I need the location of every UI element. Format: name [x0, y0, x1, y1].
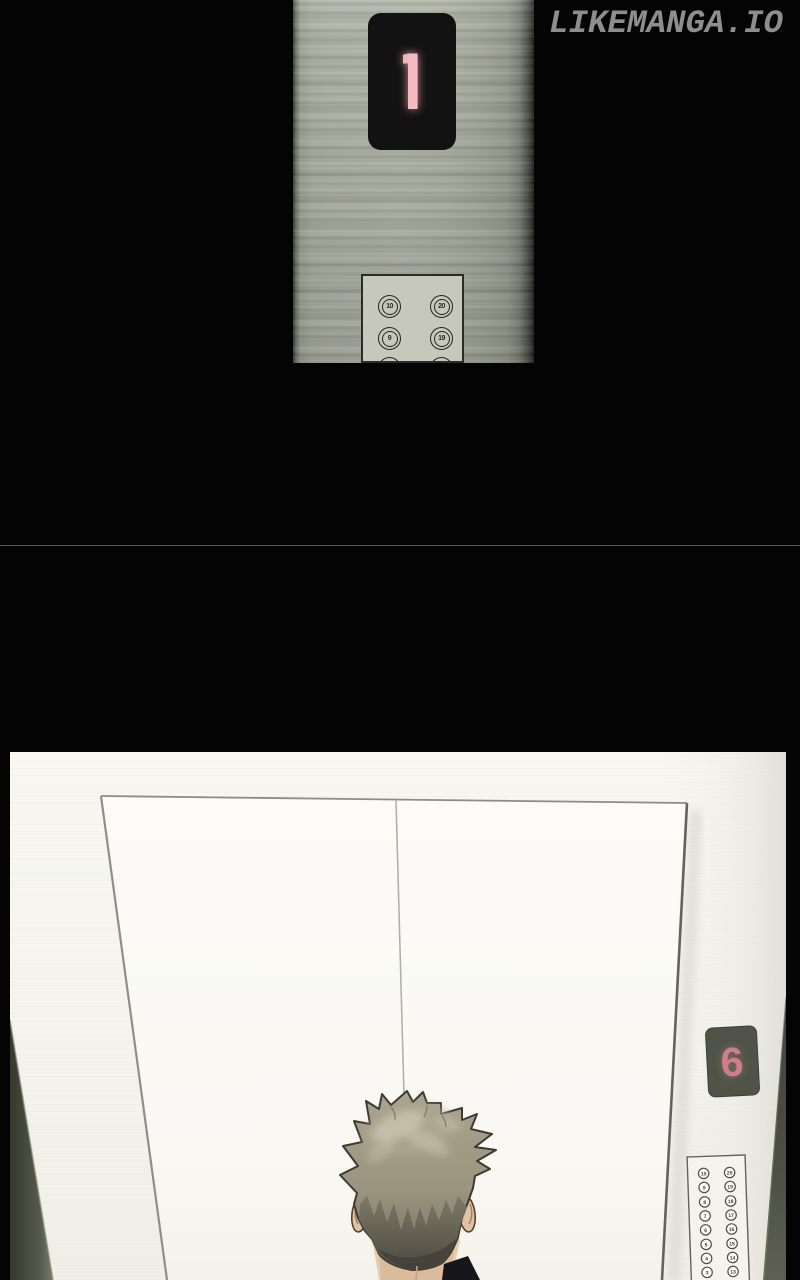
svg-text:20: 20	[727, 1170, 733, 1176]
svg-text:3: 3	[706, 1270, 709, 1276]
svg-text:15: 15	[729, 1241, 735, 1247]
svg-text:4: 4	[705, 1256, 708, 1262]
svg-text:7: 7	[704, 1214, 707, 1220]
svg-text:5: 5	[705, 1242, 708, 1248]
svg-text:9: 9	[703, 1185, 706, 1191]
svg-text:6: 6	[704, 1228, 707, 1234]
svg-text:19: 19	[727, 1184, 733, 1190]
svg-text:17: 17	[728, 1213, 734, 1219]
svg-text:6: 6	[719, 1038, 744, 1085]
svg-text:18: 18	[728, 1199, 734, 1205]
svg-text:10: 10	[701, 1171, 707, 1177]
svg-text:13: 13	[730, 1269, 736, 1275]
svg-text:8: 8	[703, 1200, 706, 1206]
svg-text:14: 14	[730, 1255, 736, 1261]
svg-text:16: 16	[729, 1227, 735, 1233]
